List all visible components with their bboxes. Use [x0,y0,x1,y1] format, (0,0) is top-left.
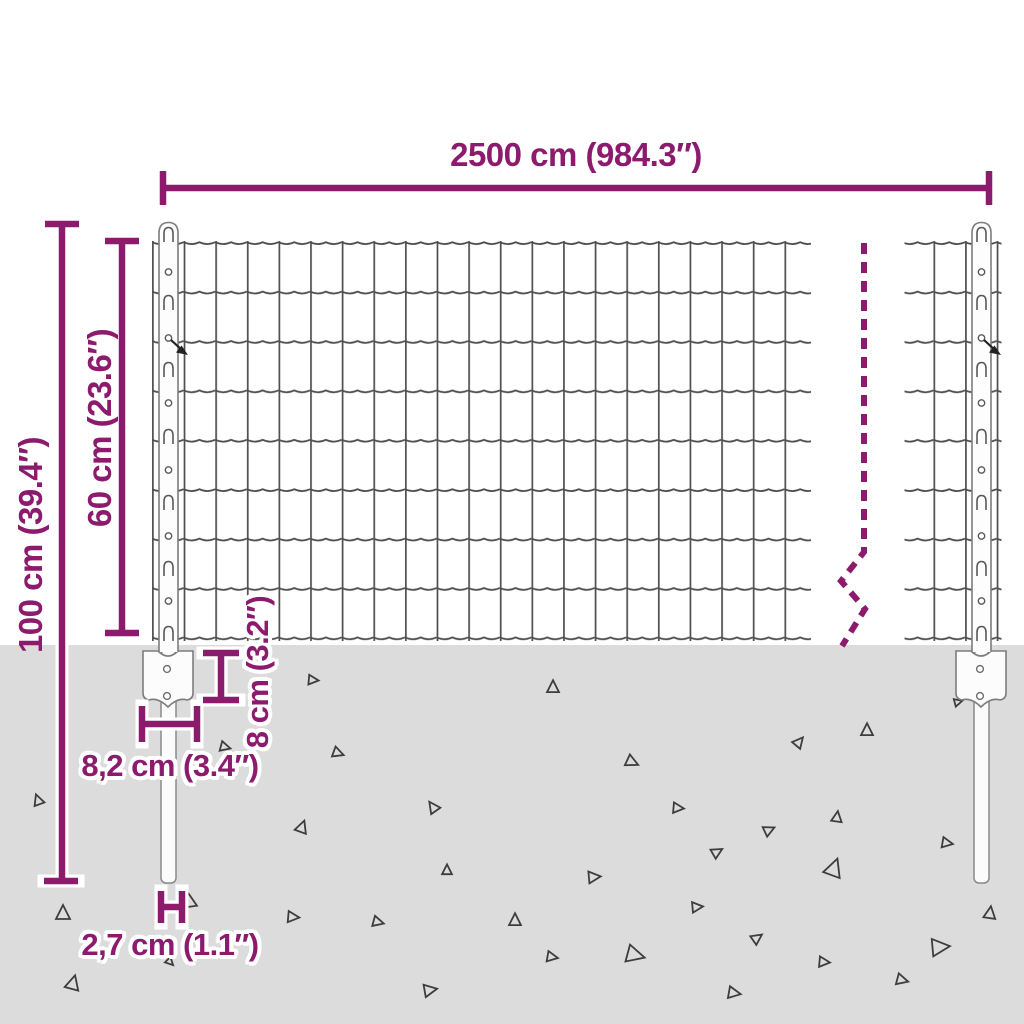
dim-label-mesh-height: 60 cm (23.6″) [81,329,119,527]
dim-label-plate-width: 8,2 cm (3.4″) [81,748,258,784]
dim-label-total-height: 100 cm (39.4″) [12,437,50,653]
break-line [841,243,865,646]
right-post [972,223,991,653]
dim-label-panel-width: 2500 cm (984.3″) [450,136,702,174]
left-post [159,223,178,653]
mesh-panel-left [152,241,811,641]
dim-label-plate-height: 8 cm (3.2″) [240,596,276,748]
dim-line-panel-width [163,171,989,205]
fence-dimension-diagram: 2500 cm (984.3″) 100 cm (39.4″) 60 cm (2… [0,0,1024,1024]
left-anchor-plate [143,651,193,707]
ground [0,645,1024,1024]
dim-label-post-width: 2,7 cm (1.1″) [81,927,258,963]
right-anchor-plate [956,651,1006,707]
